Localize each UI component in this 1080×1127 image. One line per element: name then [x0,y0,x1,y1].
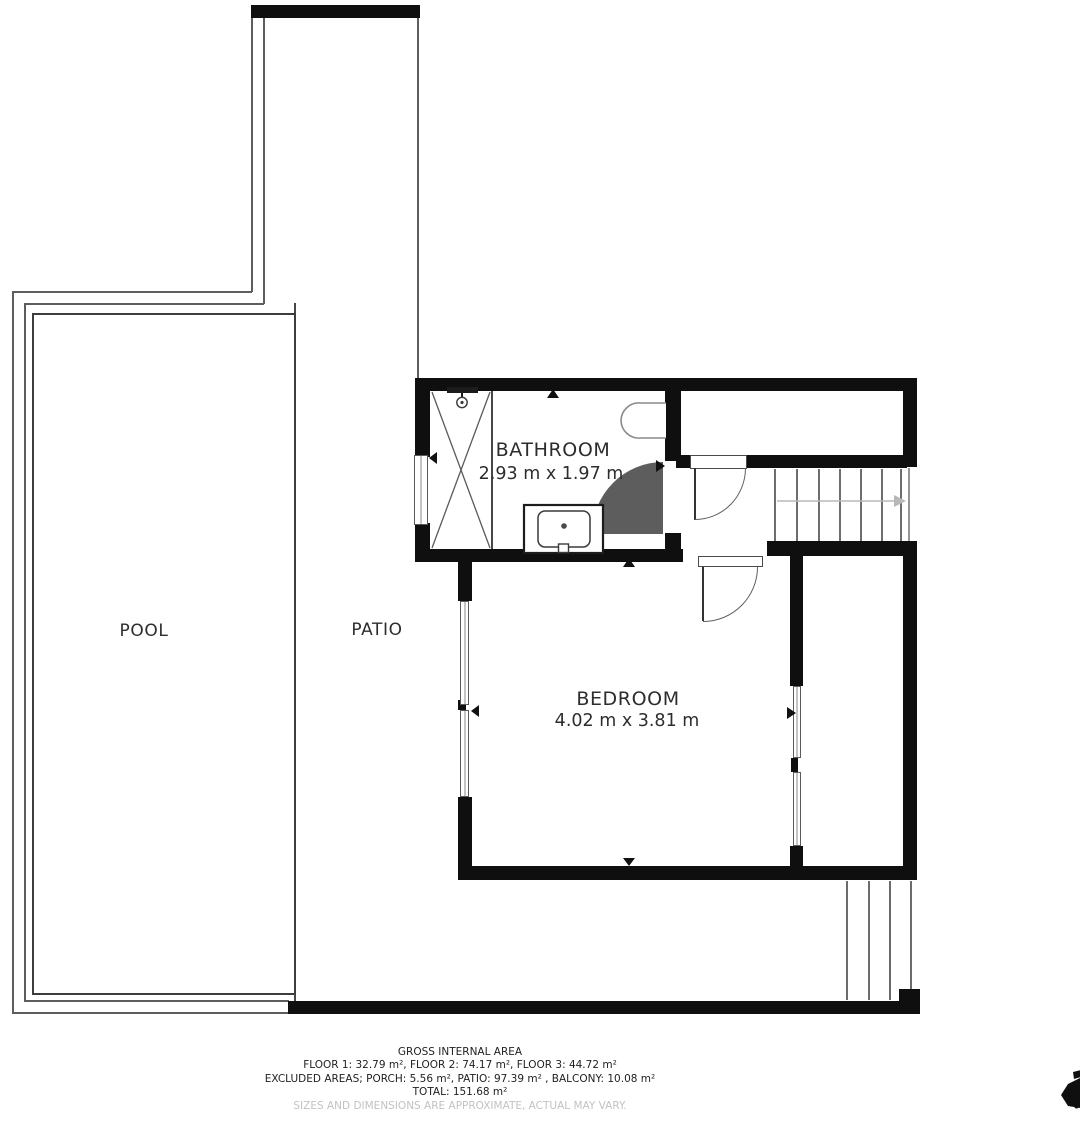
window-glass-line [464,711,465,796]
patio-top-outer-line [12,291,252,293]
landing-top-wall-right [747,455,907,468]
bedroom-left-window-lower [460,710,469,797]
bedroom-label: BEDROOM [576,688,679,710]
bedroom-left-wall-upper [458,562,472,601]
column-top-wall [251,5,420,18]
patio-top-inner-line [24,303,264,305]
window-glass-line [797,773,798,845]
excluded-areas-line: EXCLUDED AREAS; PORCH: 5.56 m², PATIO: 9… [60,1073,860,1086]
bathroom-left-wall-upper [415,390,430,457]
bedroom-left-window-upper [460,601,469,705]
window-glass-line [421,456,422,524]
staircase [775,468,909,541]
patio-bottom-corner-block [899,989,920,1014]
floor-areas-line: FLOOR 1: 32.79 m², FLOOR 2: 74.17 m², FL… [60,1059,860,1072]
patio-label: PATIO [351,620,402,640]
building-top-wall [415,378,917,391]
column-left-inner-line [263,18,265,304]
landing-top-wall-left-stub [676,455,690,468]
floor-plan: POOL PATIO BATHROOM 2.93 m x 1.97 m BEDR… [0,0,1080,1127]
tick-down-bedroom [623,858,635,866]
patio-bottom-wall [288,1001,920,1014]
bedroom-door-swing-arc [703,567,758,622]
arrow-left-bathroom-window [429,452,437,464]
column-right-line [417,18,419,378]
pool-label: POOL [120,621,169,641]
column-left-outer-line [251,18,253,292]
bedroom-bottom-wall [458,866,917,880]
landing-door-threshold [690,455,747,469]
gross-internal-area-title: GROSS INTERNAL AREA [60,1046,860,1059]
right-exterior-wall-upper [903,378,917,467]
window-glass-line [797,687,798,757]
bathroom-right-wall-stub [665,533,681,551]
right-exterior-wall-lower [903,541,917,880]
bathroom-right-wall-upper [665,391,681,461]
toilet-icon [621,403,666,438]
exterior-steps [847,881,911,1000]
area-summary: GROSS INTERNAL AREA FLOOR 1: 32.79 m², F… [60,1046,860,1113]
bathroom-dimensions: 2.93 m x 1.97 m [479,464,624,484]
bathroom-bottom-wall [415,549,683,562]
bedroom-right-window-upper [793,686,801,758]
bedroom-door-threshold [698,556,763,567]
bedroom-right-wall-upper [790,556,803,686]
arrow-left-bedroom-window [471,705,479,717]
patio-left-outer-line [12,291,14,1014]
stairs-bottom-wall [767,541,917,556]
total-area-line: TOTAL: 151.68 m² [60,1086,860,1099]
patio-left-inner-line [24,303,26,1002]
bedroom-right-window-lower [793,772,801,846]
window-glass-line [464,602,465,704]
landing-door-swing-arc [695,468,746,520]
bedroom-right-window-mullion [791,758,798,772]
pool-outline [32,313,296,995]
bedroom-right-wall-lower [790,846,803,880]
bathroom-window [414,455,428,525]
patio-bottom-inner-line [24,1000,289,1002]
logo-mark [1061,1070,1080,1109]
bedroom-dimensions: 4.02 m x 3.81 m [555,711,700,731]
bathroom-label: BATHROOM [496,439,611,461]
stairs-direction-arrow [777,495,906,507]
disclaimer-line: SIZES AND DIMENSIONS ARE APPROXIMATE, AC… [60,1100,860,1113]
